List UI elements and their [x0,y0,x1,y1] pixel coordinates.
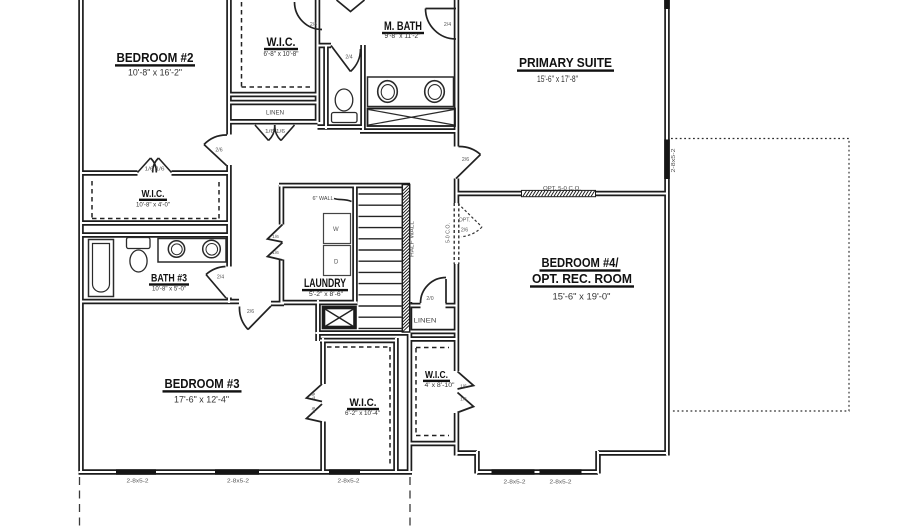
svg-text:W.I.C.: W.I.C. [425,370,448,381]
svg-text:2/4: 2/4 [444,22,451,28]
svg-text:2-8x5-2: 2-8x5-2 [338,479,360,485]
svg-text:HALF WALL: HALF WALL [410,221,416,257]
svg-text:W: W [333,227,339,233]
svg-text:10'-8" x 16'-2": 10'-8" x 16'-2" [128,68,182,78]
svg-text:2/4: 2/4 [345,55,352,61]
svg-text:5-0 C.O.: 5-0 C.O. [446,223,452,243]
svg-text:1/6: 1/6 [272,234,279,240]
svg-text:9'-8" x 11'-2": 9'-8" x 11'-2" [385,33,421,40]
svg-text:2/6: 2/6 [215,148,222,154]
svg-text:1/6: 1/6 [460,384,467,390]
svg-text:10'-8" x 5'-0": 10'-8" x 5'-0" [152,286,187,293]
svg-text:2-8x5-2: 2-8x5-2 [227,479,249,485]
svg-text:6'-8" x 10'-8": 6'-8" x 10'-8" [264,49,299,58]
svg-text:15'-6" x 19'-0": 15'-6" x 19'-0" [553,292,611,302]
svg-text:2/6: 2/6 [461,228,468,234]
svg-text:6" WALL: 6" WALL [313,196,334,202]
svg-text:M. BATH: M. BATH [384,19,422,33]
svg-text:BEDROOM #3: BEDROOM #3 [165,377,240,391]
svg-text:1/6: 1/6 [460,397,467,403]
svg-text:1/6 1/6: 1/6 1/6 [265,129,285,135]
svg-text:BATH #3: BATH #3 [151,273,187,285]
svg-text:BEDROOM #4/: BEDROOM #4/ [542,256,619,270]
svg-text:2-8x5-2: 2-8x5-2 [504,480,526,486]
svg-text:LAUNDRY: LAUNDRY [304,278,346,290]
svg-text:2/0: 2/0 [426,296,433,302]
svg-text:2-8x5-2: 2-8x5-2 [550,480,572,486]
svg-text:2/6: 2/6 [462,157,469,163]
svg-text:PRIMARY SUITE: PRIMARY SUITE [519,55,612,70]
svg-text:15'-6" x 17'-8": 15'-6" x 17'-8" [537,74,578,84]
svg-text:OPT. REC. ROOM: OPT. REC. ROOM [532,272,632,286]
svg-text:1/6 1/6: 1/6 1/6 [145,167,165,173]
svg-text:5'-2" x 8'-6": 5'-2" x 8'-6" [309,291,344,298]
svg-text:10'-8" x 4'-0": 10'-8" x 4'-0" [136,201,171,208]
svg-text:W.I.C.: W.I.C. [267,35,296,49]
svg-text:2-8x5-2: 2-8x5-2 [671,148,677,172]
svg-text:LINEN: LINEN [414,318,437,325]
svg-text:LINEN: LINEN [266,110,284,117]
svg-text:1/6: 1/6 [272,250,279,256]
svg-text:2/6: 2/6 [247,309,254,315]
svg-text:W.I.C.: W.I.C. [142,188,165,200]
svg-text:OPT. 5-0 C.O.: OPT. 5-0 C.O. [543,186,581,192]
svg-text:2-8x5-2: 2-8x5-2 [127,479,149,485]
svg-text:1/6: 1/6 [311,392,317,399]
svg-text:4' x 8'-10": 4' x 8'-10" [425,382,455,389]
svg-text:2/4: 2/4 [310,22,317,28]
svg-text:OPT.: OPT. [459,218,471,224]
svg-text:W.I.C.: W.I.C. [350,397,377,409]
svg-text:D: D [334,260,339,266]
svg-text:BEDROOM #2: BEDROOM #2 [117,50,194,65]
svg-text:1/6: 1/6 [311,406,317,413]
svg-text:17'-6" x 12'-4": 17'-6" x 12'-4" [174,395,229,405]
svg-text:6'-2" x 10'-4": 6'-2" x 10'-4" [345,410,381,417]
svg-text:2/4: 2/4 [217,275,224,281]
